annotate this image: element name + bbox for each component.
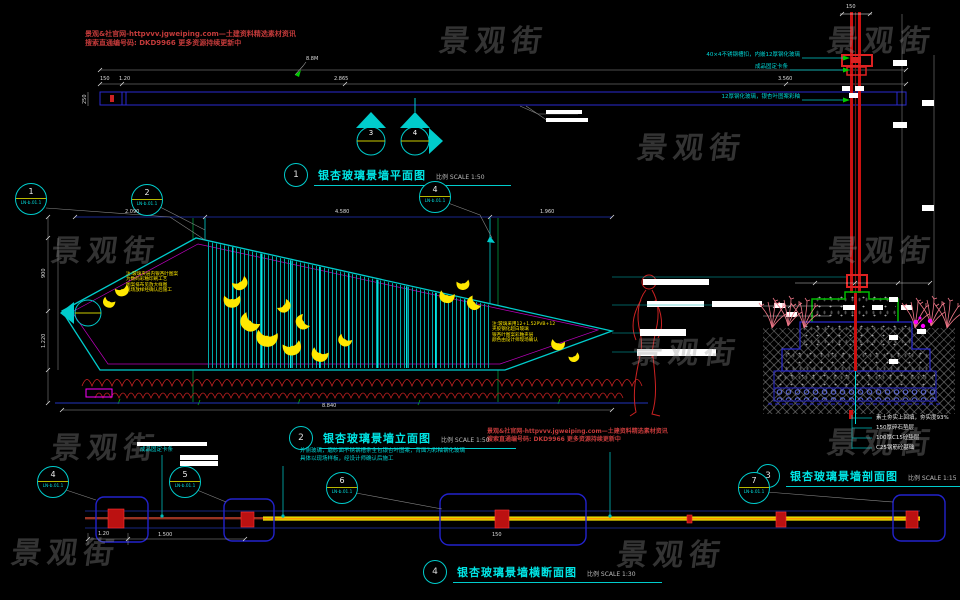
watermark: 景观街 (630, 328, 744, 372)
section-title: 3银杏玻璃景墙剖面图比例 SCALE 1:15 (756, 464, 960, 488)
callout-number: 6 (327, 473, 357, 488)
watermark: 景观街 (437, 16, 551, 60)
plan-left-dim: 250 (82, 94, 88, 104)
callout-ref: LN-b.01.1 (741, 489, 767, 497)
callout-ref: LN-b.01.1 (422, 198, 448, 206)
elev-left-dim: 1.220 (41, 334, 47, 348)
cross-note-2: 具体以现场样板，经设计师确认后施工 (300, 456, 394, 463)
watermark: 景观街 (635, 123, 749, 167)
elevation-title: 2银杏玻璃景墙立面图比例 SCALE 1:50 (289, 426, 516, 450)
vendor-note: 景观&社官网-httpvvv.jgweiping.com—土建资料精选素材资讯 … (85, 30, 296, 48)
clamp-label: 成品固定卡条 (140, 447, 173, 454)
plan-dim: 150 (100, 76, 110, 82)
callout-number: 4 (420, 182, 450, 197)
callout-number: 4 (38, 467, 68, 482)
elev-dim: 2.090 (125, 209, 139, 215)
plan-title-number: 1 (284, 163, 308, 187)
plan-dim: 3.560 (778, 76, 792, 82)
plan-title-scale: 比例 SCALE 1:50 (436, 174, 485, 181)
note-line: 现场放样经确认后施工 (126, 288, 178, 293)
plan-title: 1银杏玻璃景墙平面图比例 SCALE 1:50 (284, 163, 511, 187)
plan-dim: 2.865 (334, 76, 348, 82)
elevation-title-scale: 比例 SCALE 1:50 (441, 437, 490, 444)
plan-dim: 1.20 (119, 76, 130, 82)
callout-4: 4 LN-b.01.1 (419, 181, 451, 213)
callout-ref: LN-b.01.1 (18, 200, 44, 208)
callout-ref: LN-b.01.1 (329, 489, 355, 497)
elev-bottom-dim: 8.840 (322, 403, 336, 409)
footing-note-line: 150厚碎石垫层 (876, 423, 949, 433)
elevation-view (46, 203, 848, 416)
glass-note-right: 注:玻璃采用12+1.52PVB+12 夹胶钢化超白玻璃 银杏叶图案彩釉夹层 颜… (492, 322, 555, 344)
cross-title-scale: 比例 SCALE 1:30 (587, 571, 636, 578)
cad-sheet: 景观街 景观街 景观街 景观街 景观街 景观街 景观街 景观街 景观街 景观街 … (0, 0, 960, 600)
cross-note-1: 外侧玻璃，磨砂面不锈钢槽条全包银杏叶图案，背面为彩釉钢化玻璃 (300, 448, 465, 455)
section-title-text: 银杏玻璃景墙剖面图 (790, 470, 898, 483)
note-line: 颜色由设计师现场确认 (492, 338, 555, 343)
callout-number: 2 (132, 185, 162, 200)
blanked-label (180, 461, 218, 466)
watermark: 景观街 (825, 16, 939, 60)
elevation-title-number: 2 (289, 426, 313, 450)
section-top-dim: 150 (846, 4, 856, 10)
section-title-scale: 比例 SCALE 1:15 (908, 475, 957, 482)
callout-number: 5 (170, 467, 200, 482)
elev-dim: 4.580 (335, 209, 349, 215)
section-ann-2: 成品固定卡条 (670, 64, 788, 71)
callout-number: 1 (16, 184, 46, 199)
section-marker-number: 3 (365, 129, 377, 137)
callout-ref: LN-b.01.1 (40, 483, 66, 491)
plan-title-text: 银杏玻璃景墙平面图 (318, 169, 426, 182)
vendor-note-line2: 搜索直通编号码: DKD9966 更多资源持续更新中 (85, 39, 296, 48)
footing-notes: 素土夯实上回填，夯实度93% 150厚碎石垫层 100厚C15砼垫层 C25钢筋… (876, 413, 949, 453)
cross-dim: 1.500 (158, 532, 172, 538)
cross-title-number: 4 (423, 560, 447, 584)
linework-layer (0, 0, 960, 600)
blanked-label (137, 442, 207, 446)
watermark: 景观街 (49, 226, 163, 270)
blanked-label (180, 455, 218, 460)
callout-1: 1 LN-b.01.1 (15, 183, 47, 215)
callout-b3: 6 LN-b.01.1 (326, 472, 358, 504)
section-ann-1: 40×4不锈钢槽扣，内嵌12厚钢化玻璃 (670, 52, 800, 59)
callout-ref: LN-b.01.1 (172, 483, 198, 491)
cross-title: 4银杏玻璃景墙横断面图比例 SCALE 1:30 (423, 560, 662, 584)
footing-note-line: C25钢筋砼基础 (876, 443, 949, 453)
section-ann-3: 12厚钢化玻璃，银杏叶图案彩釉 (670, 94, 800, 101)
cross-dim: 1.20 (98, 531, 109, 537)
footing-note-line: 素土夯实上回填，夯实度93% (876, 413, 949, 423)
elev-dim: 1.960 (540, 209, 554, 215)
elevation-title-text: 银杏玻璃景墙立面图 (323, 432, 431, 445)
vendor-note-line1: 景观&社官网-httpvvv.jgweiping.com—土建资料精选素材资讯 (85, 30, 296, 39)
elev-left-dim: 900 (41, 268, 47, 278)
callout-b4: 7 LN-b.01.1 (738, 472, 770, 504)
footing-note-line: 100厚C15砼垫层 (876, 433, 949, 443)
watermark: 景观街 (825, 226, 939, 270)
plan-leader-label: 8.8M (306, 56, 318, 62)
callout-ref: LN-b.01.1 (134, 201, 160, 209)
cross-dim: 150 (492, 532, 502, 538)
callout-number: 7 (739, 473, 769, 488)
section-marker-number: 4 (409, 129, 421, 137)
callout-b1: 4 LN-b.01.1 (37, 466, 69, 498)
glass-note-left: 注:玻璃夹层内银杏叶图案 为数码彩釉印刷工艺 图案排布见放大样图 现场放样经确认… (126, 272, 178, 294)
cross-title-text: 银杏玻璃景墙横断面图 (457, 566, 577, 579)
callout-b2: 5 LN-b.01.1 (169, 466, 201, 498)
